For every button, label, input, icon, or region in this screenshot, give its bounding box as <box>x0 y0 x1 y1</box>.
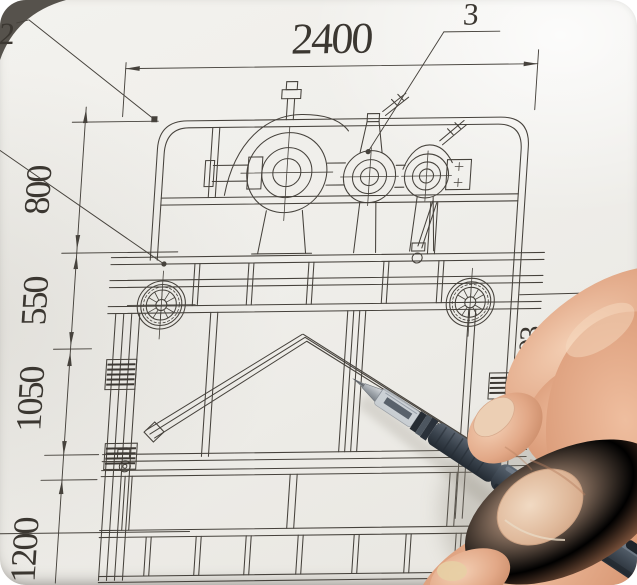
callout-label-2: 2 <box>0 16 14 51</box>
dimension-top-2400: 2400 <box>123 12 541 117</box>
callout-3: 3 <box>365 0 502 154</box>
drawing-photo: 2400 800 550 1050 1200 <box>0 0 637 585</box>
dim-label-1050: 1050 <box>8 366 52 431</box>
vibrator-flange-left <box>125 271 197 340</box>
dim-label-1200: 1200 <box>2 517 46 582</box>
technical-drawing-scene: 2400 800 550 1050 1200 <box>0 0 637 585</box>
dim-label-2400: 2400 <box>290 14 374 64</box>
dim-label-800: 800 <box>16 165 59 214</box>
vibrator-flange-right <box>434 268 506 337</box>
callout-label-3: 3 <box>462 0 479 32</box>
lower-fingernail <box>437 561 467 581</box>
dimension-left-chain: 800 550 1050 1200 <box>0 106 217 585</box>
dim-label-550: 550 <box>13 276 56 325</box>
